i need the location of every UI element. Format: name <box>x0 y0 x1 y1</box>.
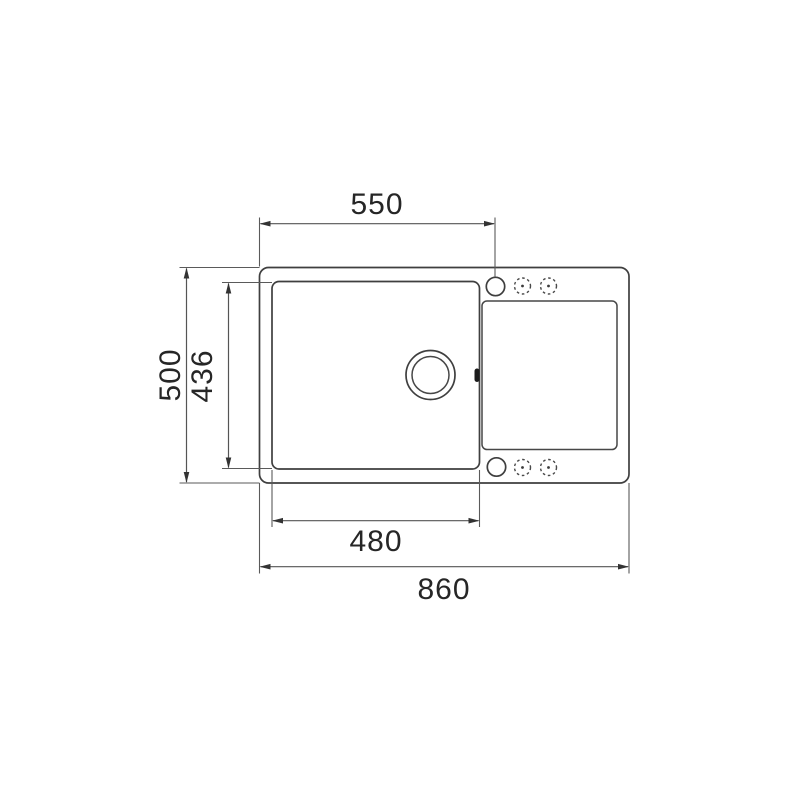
dimension-860: 860 <box>260 483 630 606</box>
tap-hole-optional-top-1-center-dot <box>521 285 524 288</box>
drain-hole-outer-circle <box>406 351 455 400</box>
tap-hole-drilled-top-icon <box>486 277 504 295</box>
overflow-notch <box>475 369 480 383</box>
arrowhead-left-icon <box>260 564 271 570</box>
drain-hole-inner-circle <box>412 357 449 394</box>
arrowhead-right-icon <box>484 221 495 227</box>
arrowhead-up-icon <box>226 283 232 294</box>
arrowhead-up-icon <box>184 268 190 279</box>
dimension-label-bowl-depth: 436 <box>186 349 219 402</box>
dimension-label-overall-width: 860 <box>417 573 470 606</box>
tap-hole-optional-bottom-1-center-dot <box>521 466 524 469</box>
tap-hole-optional-top-2-center-dot <box>547 285 550 288</box>
tap-hole-optional-bottom-2-center-dot <box>547 466 550 469</box>
arrowhead-left-icon <box>272 518 283 524</box>
arrowhead-right-icon <box>618 564 629 570</box>
dimension-label-bowl-width: 480 <box>349 525 402 558</box>
arrowhead-left-icon <box>260 221 271 227</box>
arrowhead-down-icon <box>184 472 190 483</box>
dimension-label-tap-hole-offset: 550 <box>350 188 403 221</box>
dimension-label-overall-depth: 500 <box>154 348 187 401</box>
drainer-board-outline <box>482 301 617 450</box>
sink-outer-outline <box>260 268 630 484</box>
tap-holes-top-row <box>486 277 556 295</box>
tap-holes-bottom-row <box>487 458 556 476</box>
drain-hole <box>406 351 455 400</box>
arrowhead-down-icon <box>226 458 232 469</box>
tap-hole-drilled-bottom-icon <box>487 458 505 476</box>
sink-plan-view <box>260 268 630 484</box>
dimension-550: 550 <box>260 188 496 277</box>
sink-technical-drawing-canvas: 550 500 436 480 <box>0 0 800 800</box>
arrowhead-right-icon <box>469 518 480 524</box>
sink-technical-drawing: 550 500 436 480 <box>0 0 800 800</box>
